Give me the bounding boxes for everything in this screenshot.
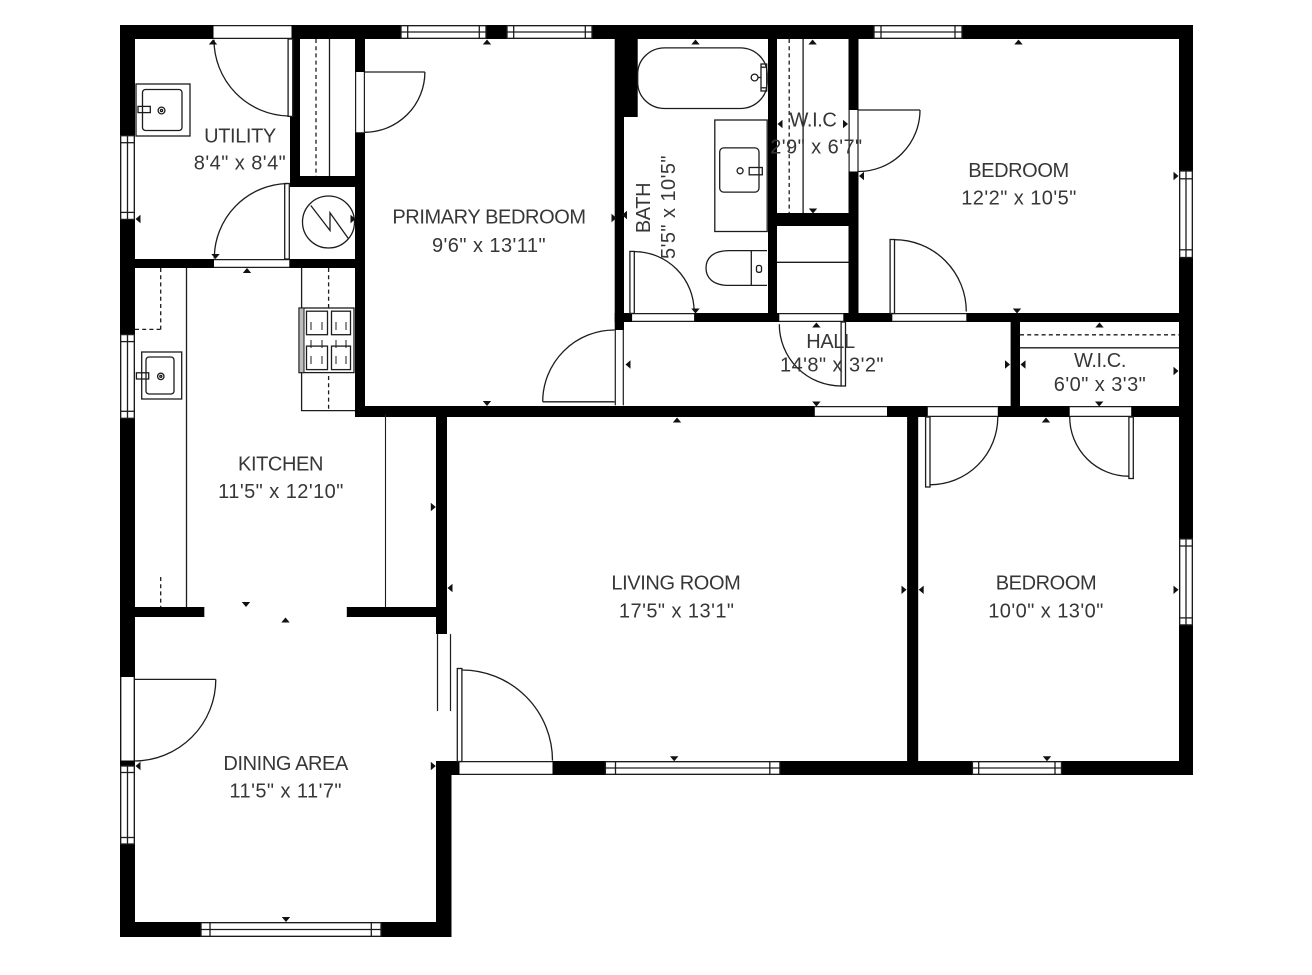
svg-text:W.I.C: W.I.C [790, 110, 837, 132]
svg-text:6'0" x 3'3": 6'0" x 3'3" [1054, 374, 1146, 396]
svg-text:LIVING ROOM: LIVING ROOM [611, 573, 740, 595]
svg-text:10'0" x 13'0": 10'0" x 13'0" [988, 601, 1104, 623]
svg-text:HALL: HALL [806, 331, 855, 353]
svg-text:W.I.C.: W.I.C. [1074, 350, 1126, 372]
svg-text:5'5" x 10'5": 5'5" x 10'5" [658, 155, 680, 259]
svg-text:9'6" x 13'11": 9'6" x 13'11" [432, 235, 546, 257]
svg-text:12'2" x 10'5": 12'2" x 10'5" [961, 188, 1077, 210]
svg-text:KITCHEN: KITCHEN [238, 454, 323, 476]
svg-text:BEDROOM: BEDROOM [996, 573, 1097, 595]
svg-text:17'5" x 13'1": 17'5" x 13'1" [619, 601, 735, 623]
svg-text:8'4" x 8'4": 8'4" x 8'4" [194, 153, 286, 175]
svg-text:DINING AREA: DINING AREA [223, 753, 349, 775]
svg-text:2'9" x 6'7": 2'9" x 6'7" [770, 137, 862, 159]
svg-text:UTILITY: UTILITY [204, 126, 276, 148]
svg-text:11'5" x 12'10": 11'5" x 12'10" [218, 481, 344, 503]
svg-text:BATH: BATH [633, 183, 655, 233]
svg-text:14'8" x 3'2": 14'8" x 3'2" [780, 355, 884, 377]
svg-text:BEDROOM: BEDROOM [968, 160, 1069, 182]
svg-text:11'5" x 11'7": 11'5" x 11'7" [229, 781, 342, 803]
svg-text:PRIMARY BEDROOM: PRIMARY BEDROOM [392, 207, 585, 229]
